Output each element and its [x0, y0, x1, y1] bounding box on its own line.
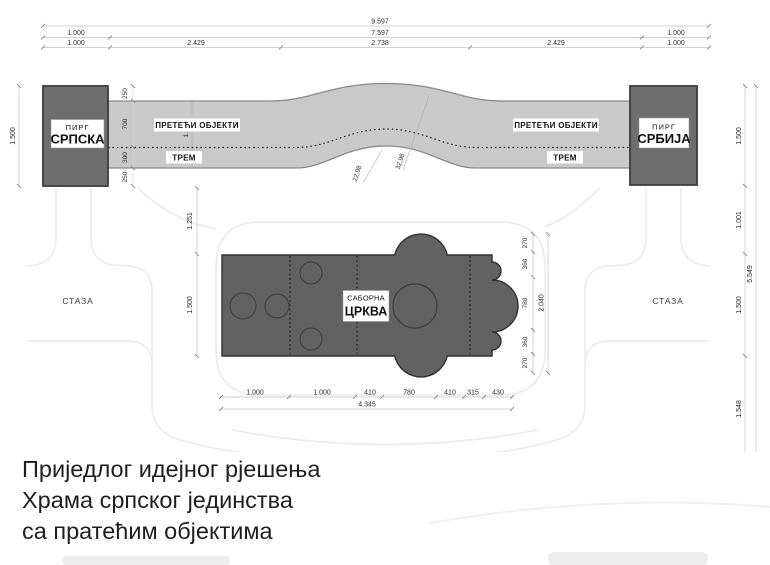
band-upper-left-label: ПРЕТЕЋИ ОБЈЕКТИ — [155, 121, 239, 130]
dim-bottom-a: 1.000 — [246, 390, 264, 397]
dim-top-r3-b: 2.429 — [187, 40, 205, 47]
church-left-dimension: 1.251 1.500 — [187, 186, 199, 358]
dim-right-outer-a: 1.500 — [736, 127, 743, 145]
dim-right-outer-c: 1.500 — [736, 296, 743, 314]
bottom-inner-arc — [232, 430, 538, 445]
right-lower-walk — [585, 341, 710, 362]
dim-band-300: 300 — [122, 152, 129, 163]
site-plan-drawing: 9.597 1.000 7.597 1.000 1.000 2.429 2.73… — [0, 0, 770, 452]
right-outer-dimension: 1.500 1.001 1.500 1.548 5.549 — [736, 84, 758, 452]
dim-top-r3-e: 1.000 — [667, 40, 685, 47]
architectural-plan-page: { "drawing": { "top_dims": { "total": "9… — [0, 0, 770, 565]
church-caption: САБОРНА — [347, 294, 385, 303]
top-dimension-rows: 9.597 1.000 7.597 1.000 1.000 2.429 2.73… — [41, 19, 711, 50]
left-band-connector — [138, 188, 216, 229]
title-block: Приједлог идејног рјешења Храма српског … — [22, 454, 320, 547]
dim-bottom-e: 410 — [444, 390, 456, 397]
right-band-connector — [544, 188, 600, 227]
dim-church-right-d: 360 — [522, 336, 529, 347]
church-name: ЦРКВА — [345, 305, 388, 319]
dim-bottom-f: 315 — [467, 390, 479, 397]
dim-top-r2-b: 7.597 — [371, 30, 389, 37]
dim-right-outer-b: 1.001 — [736, 211, 743, 229]
smudge-left — [62, 556, 230, 565]
dim-right-outer-d: 1.548 — [736, 400, 743, 418]
dim-top-total: 9.597 — [371, 19, 389, 26]
dim-church-left-a: 1.251 — [187, 212, 194, 230]
title-line-3: са пратећим објектима — [22, 516, 320, 547]
title-line-2: Храма српског јединства — [22, 485, 320, 516]
cathedral-church: САБОРНА ЦРКВА — [222, 234, 518, 377]
dim-bottom-b: 1.000 — [313, 390, 331, 397]
dim-top-r3-a: 1.000 — [67, 40, 85, 47]
dim-top-r2-c: 1.000 — [667, 30, 685, 37]
dim-arc-radius-right: 32,98 — [395, 152, 407, 170]
bottom-dimension-rows: 1.000 1.000 410 780 410 315 430 4.345 — [219, 390, 514, 412]
path-label-right: СТАЗА — [652, 296, 683, 306]
dim-top-r3-c: 2.738 — [371, 40, 389, 47]
dim-bottom-total: 4.345 — [358, 402, 376, 409]
dim-arc-radius-left: 22,98 — [352, 164, 364, 182]
dim-right-outer-total: 5.549 — [747, 265, 754, 283]
dim-left-outer: 1.500 — [10, 127, 17, 145]
band-lower-right-label: ТРЕМ — [553, 154, 576, 163]
path-label-left: СТАЗА — [62, 296, 93, 306]
tower-left: ПИРГ СРПСКА — [43, 86, 108, 186]
dim-bottom-g: 430 — [492, 390, 504, 397]
dim-band-250a: 250 — [122, 88, 129, 99]
dim-top-r2-a: 1.000 — [67, 30, 85, 37]
dim-church-right-total: 2.040 — [539, 294, 546, 312]
tower-right: ПИРГ СРБИЈА — [630, 86, 697, 185]
right-funnel-outer — [681, 188, 710, 266]
dim-church-left-b: 1.500 — [187, 296, 194, 314]
arc-radius-leader-left — [363, 150, 382, 183]
dim-church-right-a: 270 — [522, 237, 529, 248]
left-outer-dimension: 1.500 — [10, 84, 21, 188]
band-lower-left-label: ТРЕМ — [172, 154, 195, 163]
dim-church-right-e: 270 — [522, 357, 529, 368]
dim-bottom-d: 780 — [403, 390, 415, 397]
dim-bottom-c: 410 — [364, 390, 376, 397]
connecting-band: 22,98 32,98 1.00 — [108, 84, 630, 184]
left-lower-walk — [27, 341, 152, 362]
smudge-right — [548, 552, 708, 565]
dim-top-r3-d: 2.429 — [547, 40, 565, 47]
dim-church-right-b: 360 — [522, 258, 529, 269]
dim-band-700: 700 — [122, 118, 129, 129]
dim-church-right-c: 780 — [522, 297, 529, 308]
tower-right-name: СРБИЈА — [637, 131, 691, 146]
title-line-1: Приједлог идејног рјешења — [22, 454, 320, 485]
band-upper-right-label: ПРЕТЕЋИ ОБЈЕКТИ — [514, 121, 598, 130]
dim-band-250b: 250 — [122, 171, 129, 182]
tower-left-name: СРПСКА — [50, 132, 105, 147]
left-funnel-outer — [27, 188, 56, 266]
faint-arc-bottom-right — [430, 503, 770, 523]
